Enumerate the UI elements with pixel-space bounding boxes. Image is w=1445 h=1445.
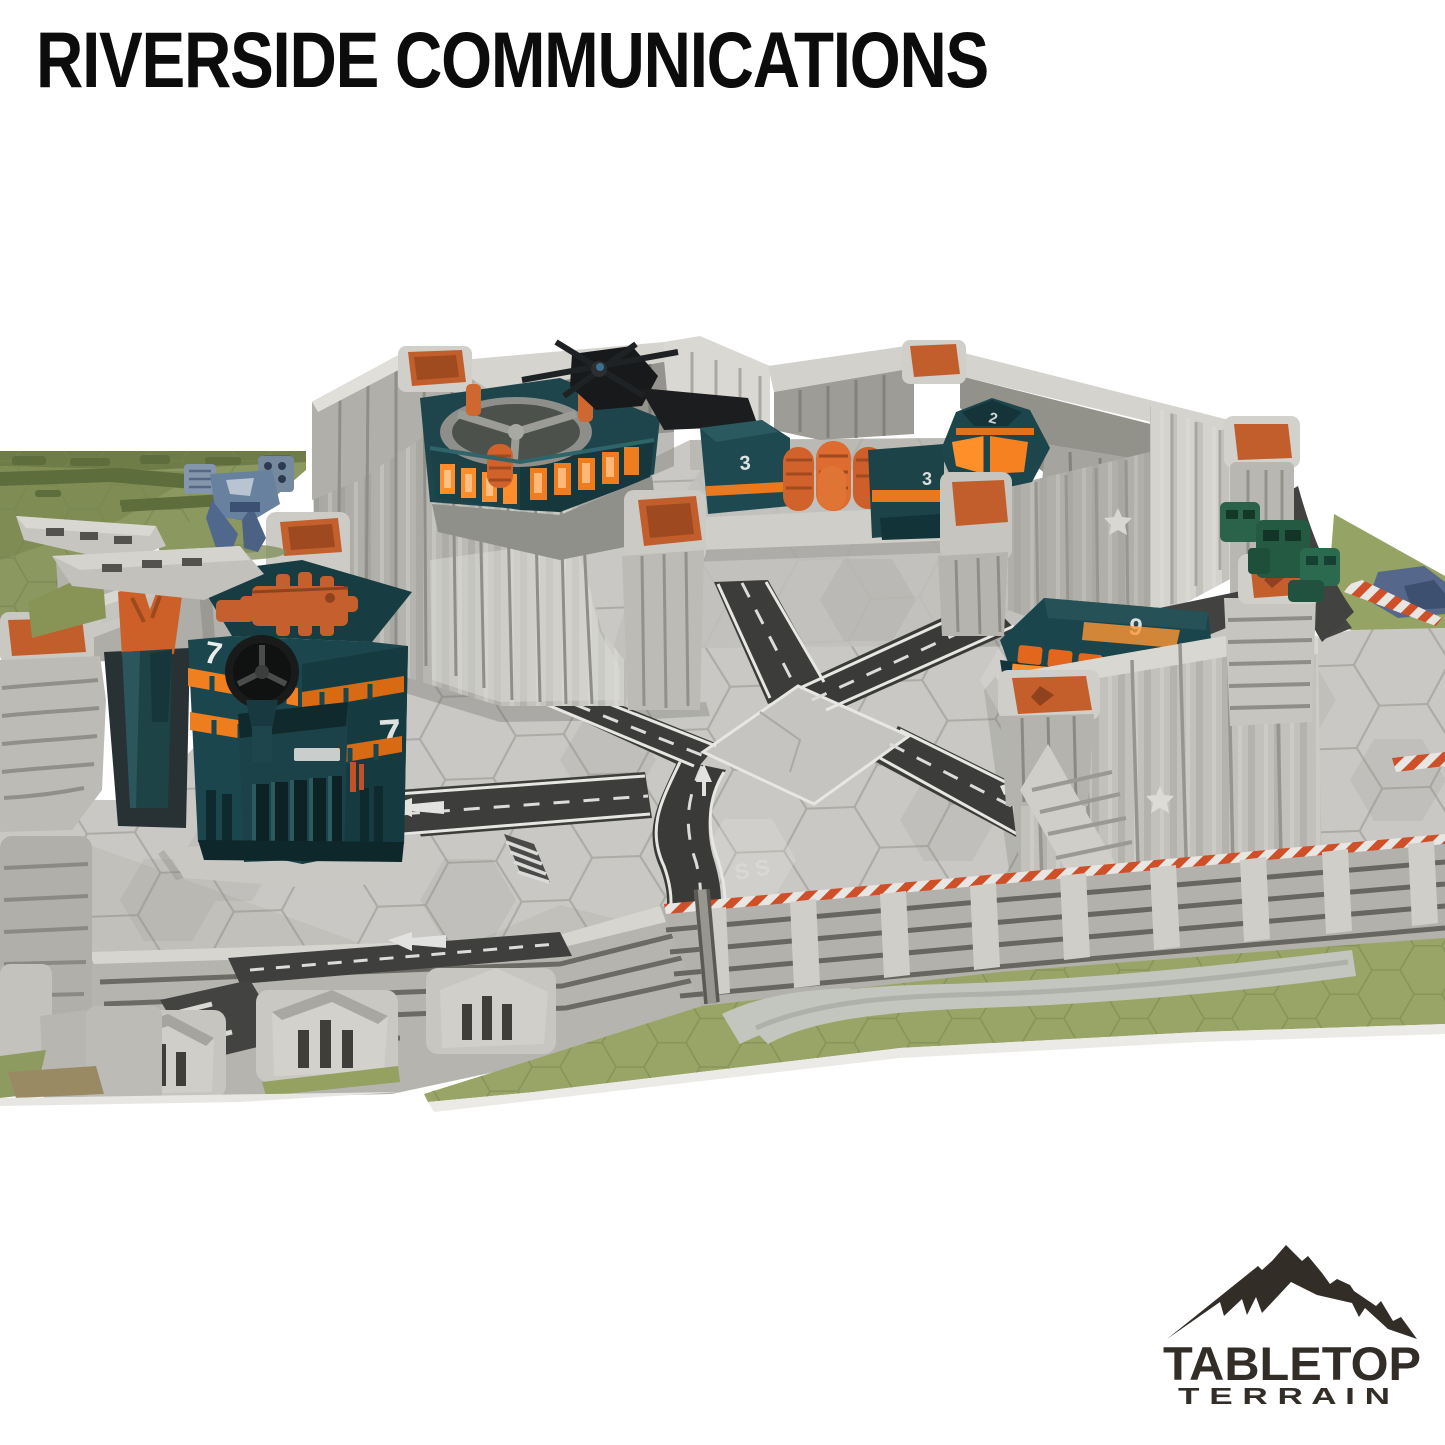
svg-text:3: 3 [922, 469, 932, 489]
svg-text:RIVERSIDE COMMUNICATIONS: RIVERSIDE COMMUNICATIONS [36, 15, 988, 104]
svg-text:3: 3 [739, 452, 752, 475]
svg-text:T E R R A I N: T E R R A I N [1178, 1383, 1390, 1409]
